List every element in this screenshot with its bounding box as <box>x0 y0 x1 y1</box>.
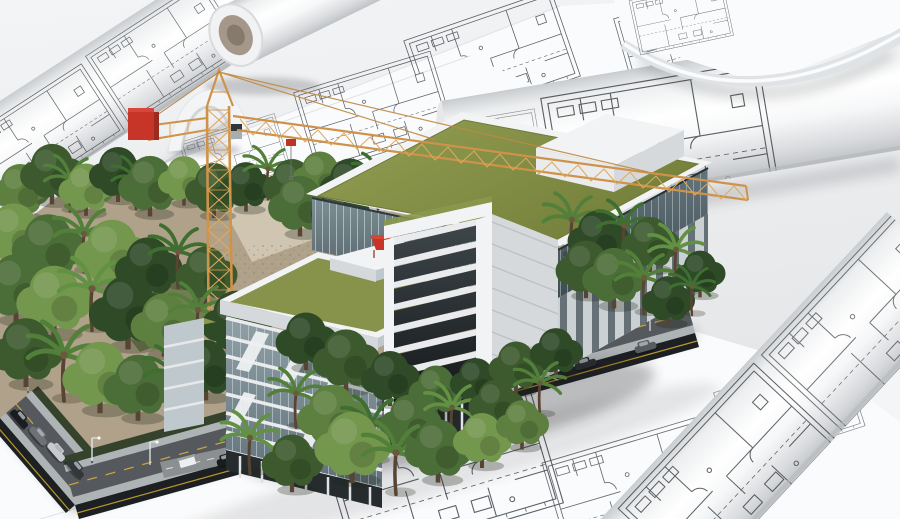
render-canvas <box>0 0 900 519</box>
architectural-render-image <box>0 0 900 519</box>
counterweight <box>128 108 159 140</box>
